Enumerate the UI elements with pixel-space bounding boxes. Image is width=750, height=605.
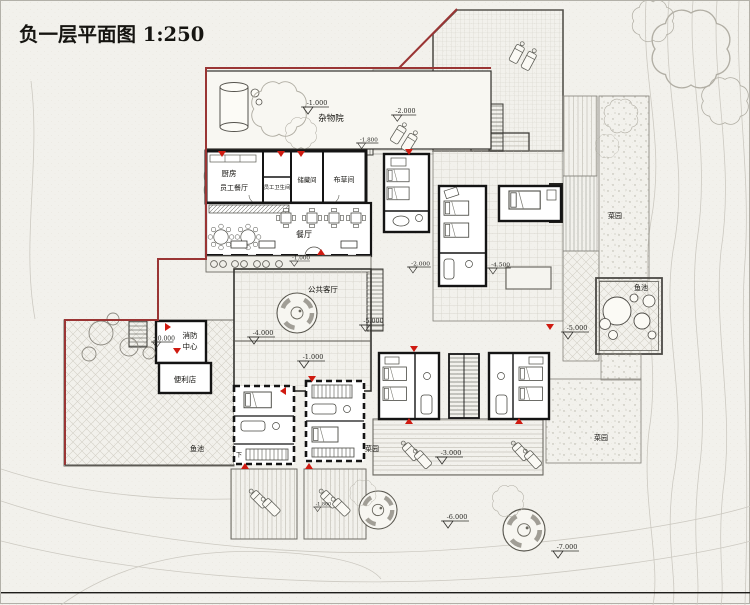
villa-a — [234, 386, 294, 464]
label-stair-down: 下 — [236, 452, 242, 459]
planter-tree-icon — [277, 293, 317, 333]
label-dining: 餐厅 — [296, 230, 312, 239]
level-value: -1.800 — [360, 137, 378, 143]
label-garden-se: 菜园 — [594, 433, 608, 442]
label-garden-mid: 菜园 — [365, 444, 379, 453]
plan-title: 负一层平面图 1:250 — [19, 23, 204, 46]
label-store: 便利店 — [174, 374, 197, 384]
level-value: -4.000 — [253, 329, 274, 337]
level-value: -2.000 — [411, 260, 430, 267]
label-fire-centre-2: 中心 — [183, 341, 198, 351]
level-value: -7.000 — [557, 543, 578, 551]
fish-pond-right — [596, 278, 662, 354]
label-public-living: 公共客厅 — [308, 284, 338, 294]
sideboard — [341, 241, 357, 248]
suite-bottom-right — [489, 353, 549, 419]
sideboard — [259, 241, 275, 248]
stair-west — [129, 321, 147, 347]
sideboard — [231, 241, 247, 248]
suite-top — [384, 154, 429, 232]
label-fire-centre-1: 消防 — [183, 330, 198, 340]
planter-tree-icon — [359, 491, 397, 529]
label-fish-pond-right: 鱼池 — [634, 283, 648, 292]
label-fish-pond-left: 鱼池 — [190, 444, 204, 453]
floor-plan-canvas: -1.000 -1.800 -2.000 -1.000 -1.000 -4.00… — [1, 1, 749, 603]
stair-core — [449, 354, 479, 418]
level-value: -6.000 — [447, 513, 468, 521]
right-crosshatch-terrace — [563, 251, 599, 361]
label-linen: 布草间 — [334, 175, 355, 184]
floor-plan-svg: -1.000 -1.800 -2.000 -1.000 -1.000 -4.00… — [1, 1, 750, 605]
level-value: ±0.000 — [153, 335, 175, 342]
garden-ne — [599, 96, 649, 281]
level-value: -5.000 — [363, 318, 383, 325]
right-upper-strip — [563, 96, 597, 176]
level-value: -1.000 — [292, 256, 310, 262]
label-staff-wc: 员工卫生间 — [264, 183, 291, 191]
label-misc-yard: 杂物院 — [318, 113, 344, 124]
misc-yard — [206, 71, 491, 149]
room-right — [499, 186, 561, 221]
suite-right — [439, 186, 486, 286]
planter-tree-icon — [503, 509, 545, 551]
sheet-bottom-line — [1, 592, 750, 593]
villa-b — [306, 381, 364, 461]
level-value: -5.000 — [567, 324, 588, 332]
dining-hall — [206, 203, 371, 256]
garden-se — [546, 379, 641, 463]
right-ramp-strip — [563, 176, 597, 251]
level-value: -2.000 — [395, 108, 415, 115]
garden-strip — [601, 354, 641, 380]
level-value: -1.000 — [303, 353, 324, 361]
suite-bottom-left — [379, 353, 439, 419]
label-storage: 储藏间 — [298, 175, 317, 184]
label-kitchen: 厨房 — [222, 168, 237, 178]
level-value: -3.000 — [441, 449, 462, 457]
floorplan-page: { "title": "负一层平面图 1:250", "colors": { "… — [0, 0, 750, 604]
level-value: -1.800 — [316, 502, 332, 508]
label-staff-dining: 员工餐厅 — [220, 183, 248, 192]
level-value: -1.000 — [307, 99, 328, 107]
label-garden-ne: 菜园 — [608, 211, 622, 220]
level-value: -4.500 — [491, 261, 510, 268]
planter-box — [506, 267, 551, 289]
